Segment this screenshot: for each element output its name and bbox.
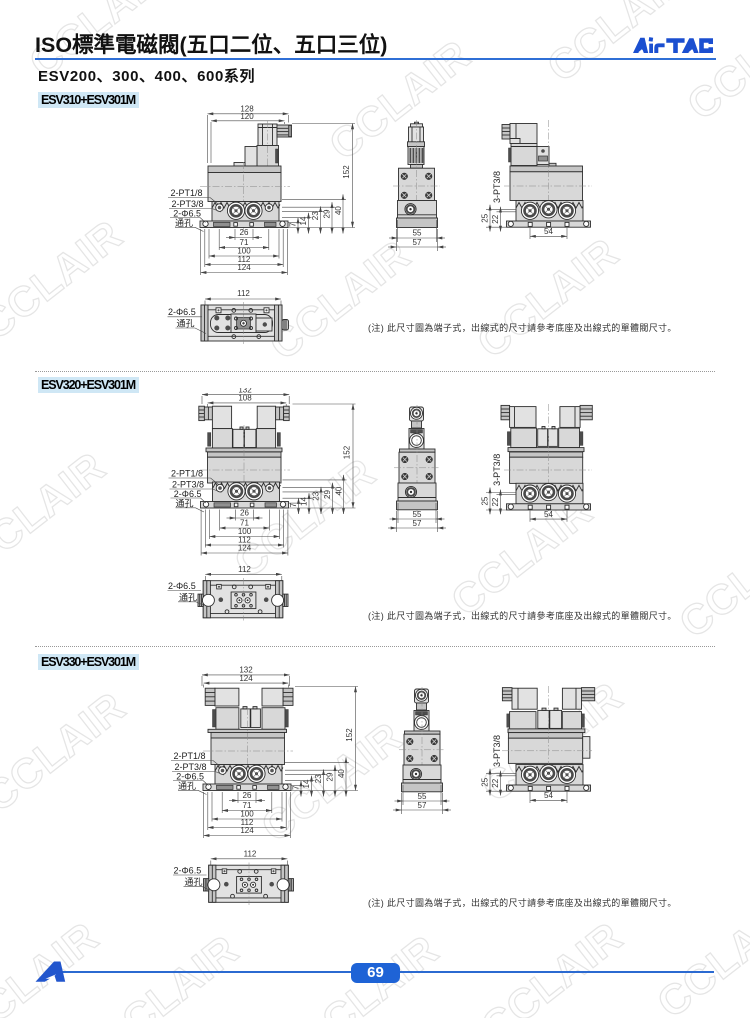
svg-text:14: 14 <box>299 216 308 225</box>
svg-text:2-Φ6.5: 2-Φ6.5 <box>168 581 196 591</box>
svg-text:55: 55 <box>413 510 422 519</box>
svg-text:26: 26 <box>240 228 249 237</box>
svg-text:57: 57 <box>413 238 422 247</box>
svg-text:55: 55 <box>413 229 422 238</box>
svg-text:152: 152 <box>342 165 351 179</box>
svg-text:2-Φ6.5: 2-Φ6.5 <box>168 307 196 317</box>
svg-text:40: 40 <box>334 206 343 215</box>
svg-text:2-PT1/8: 2-PT1/8 <box>170 188 202 198</box>
svg-text:通孔: 通孔 <box>177 319 195 329</box>
svg-text:124: 124 <box>237 263 251 272</box>
svg-text:124: 124 <box>239 674 253 683</box>
svg-text:29: 29 <box>323 209 332 218</box>
svg-text:112: 112 <box>238 565 251 574</box>
svg-text:120: 120 <box>240 112 254 121</box>
svg-text:25: 25 <box>480 213 489 222</box>
svg-text:112: 112 <box>237 289 250 298</box>
svg-text:23: 23 <box>311 211 320 220</box>
svg-text:22: 22 <box>491 214 500 223</box>
svg-text:57: 57 <box>413 519 422 528</box>
svg-text:7: 7 <box>289 222 298 227</box>
svg-text:3-PT3/8: 3-PT3/8 <box>492 171 502 203</box>
svg-text:54: 54 <box>544 227 553 236</box>
svg-text:2-Φ6.5: 2-Φ6.5 <box>173 208 201 218</box>
svg-text:108: 108 <box>238 394 252 403</box>
svg-text:通孔: 通孔 <box>175 218 193 228</box>
svg-text:通孔: 通孔 <box>179 593 197 603</box>
